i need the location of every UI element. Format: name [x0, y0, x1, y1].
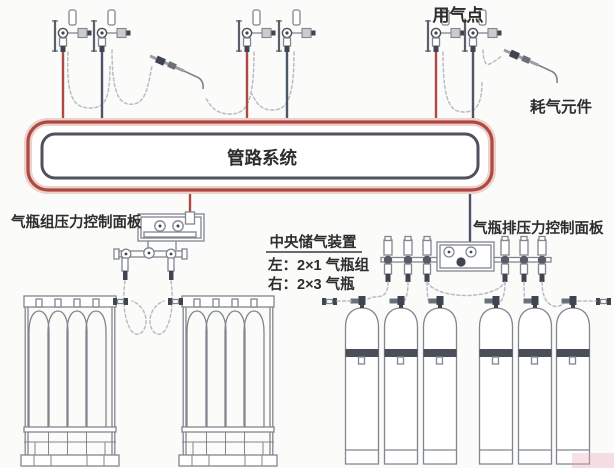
diagram-canvas: 管路系统	[0, 0, 614, 468]
piping-system-label: 管路系统	[227, 148, 297, 168]
gas-cylinder	[480, 296, 513, 464]
gas-consuming-element-label: 耗气元件	[530, 97, 593, 116]
central-storage-title: 中央储气装置	[270, 233, 357, 251]
central-storage-right-line: 右：2×3 气瓶	[268, 275, 355, 293]
hose-coupling	[596, 298, 611, 305]
hose-coupling	[113, 298, 128, 305]
watermark-smudge	[572, 453, 614, 468]
gas-cylinder	[519, 296, 552, 464]
gas-cylinder	[346, 296, 379, 464]
cylinder-group-panel-label: 气瓶组压力控制面板	[10, 213, 142, 231]
central-storage-note: 中央储气装置 左：2×1 气瓶组 右：2×3 气瓶	[266, 233, 370, 293]
gas-use-point-label: 用气点	[433, 5, 484, 25]
pipeline-system: 管路系统	[28, 122, 492, 190]
gas-cylinder	[385, 296, 418, 464]
cylinder-row-panel-label: 气瓶排压力控制面板	[472, 219, 604, 237]
gas-cylinder	[424, 296, 457, 464]
hose-coupling	[168, 298, 183, 305]
gas-cylinder	[557, 296, 590, 464]
gas-piping-diagram: 管路系统	[0, 0, 614, 468]
hose-coupling	[322, 298, 337, 305]
central-storage-left-line: 左：2×1 气瓶组	[267, 256, 370, 274]
